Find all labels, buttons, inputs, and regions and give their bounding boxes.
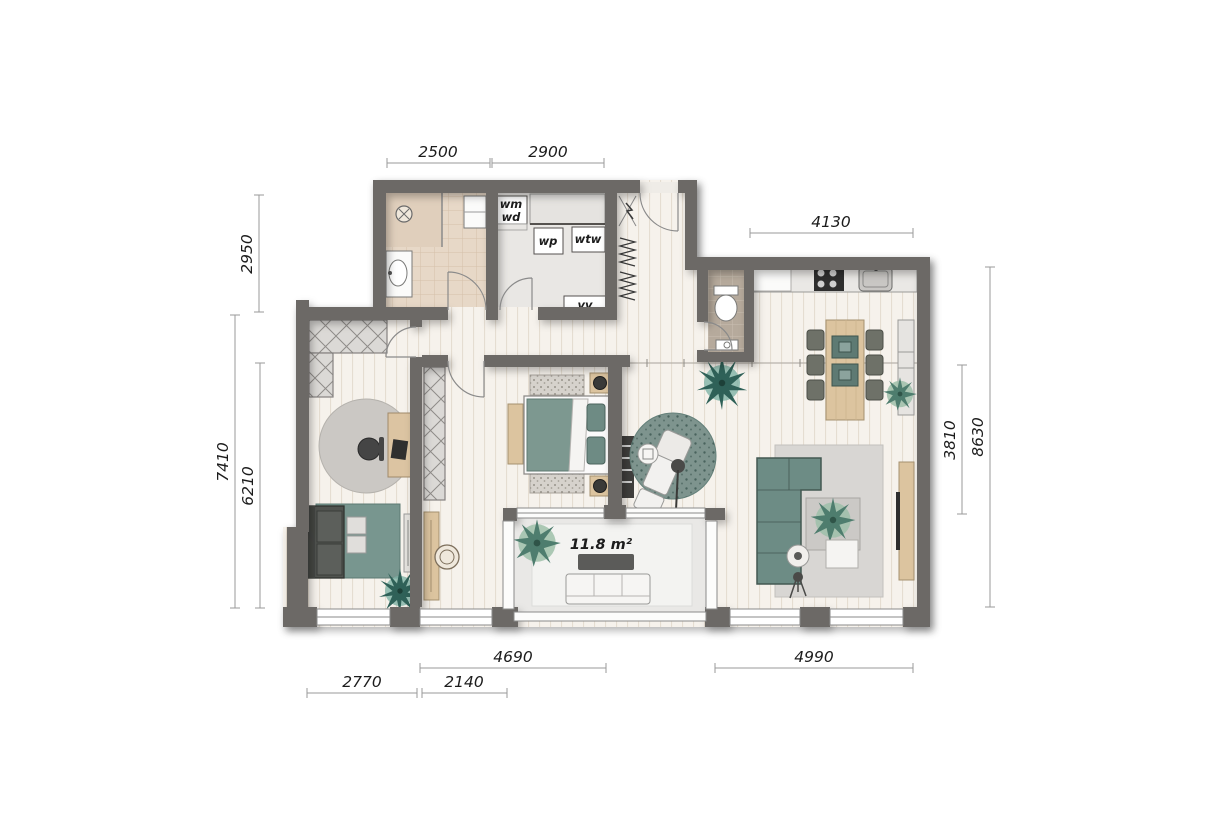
balcony-rail-bottom	[514, 612, 706, 621]
wall	[410, 357, 422, 607]
wall	[283, 607, 317, 627]
dim-label: 2140	[444, 673, 484, 691]
wall	[486, 307, 498, 320]
office-chair	[358, 438, 380, 460]
speaker-icon	[594, 377, 607, 390]
dimension-7410: 7410	[214, 315, 240, 608]
dim-label: 4990	[794, 648, 834, 666]
balcony-rail-left	[503, 521, 514, 609]
dim-label: 7410	[214, 442, 232, 482]
coffee-table-white	[826, 540, 858, 568]
lounge-side-table	[638, 444, 658, 464]
label-wm: wm	[500, 197, 523, 211]
tv-screen	[896, 492, 900, 550]
dimension-3810: 3810	[941, 365, 967, 514]
wall	[486, 193, 498, 307]
placemat-inner	[839, 342, 851, 352]
pouf	[347, 536, 366, 553]
chair	[807, 380, 824, 400]
utility-counter	[530, 194, 605, 224]
dim-label: 4130	[811, 213, 851, 231]
chair	[807, 330, 824, 350]
dim-label: 2770	[342, 673, 382, 691]
bed-rug-dots	[530, 375, 584, 395]
bed-pillow	[587, 437, 605, 464]
wall	[484, 355, 630, 367]
entry-threshold	[640, 182, 678, 193]
side-table-center	[794, 552, 802, 560]
wall	[744, 270, 754, 362]
dim-label: 8630	[969, 417, 987, 457]
laptop	[391, 439, 408, 460]
bath-faucet	[388, 271, 392, 275]
washer-dryer-front	[496, 224, 527, 230]
chair	[807, 355, 824, 375]
wall	[373, 193, 386, 307]
chair	[866, 330, 883, 350]
wall	[685, 257, 697, 270]
bed-duvet	[527, 399, 573, 471]
label-wp: wp	[539, 234, 558, 248]
wall	[296, 307, 448, 320]
wall	[705, 508, 725, 520]
dimension-4990: 4990	[715, 648, 913, 673]
wall	[903, 607, 930, 627]
speaker-icon	[594, 480, 607, 493]
rattan-stool	[435, 545, 459, 569]
toilet-bowl	[715, 295, 737, 321]
lamp-head	[793, 572, 803, 582]
wall	[604, 505, 626, 519]
office-chair-back	[379, 437, 384, 461]
dimension-2140: 2140	[422, 673, 507, 698]
wall	[697, 270, 708, 322]
wardrobe	[424, 367, 445, 500]
dim-label: 6210	[239, 466, 257, 506]
bed-pillow	[587, 404, 605, 431]
study-closet-top	[309, 320, 387, 353]
wall	[685, 193, 697, 257]
wall	[800, 607, 830, 627]
chair	[866, 380, 883, 400]
wall	[917, 270, 930, 627]
study-closet-left	[309, 353, 333, 397]
dim-label: 2900	[528, 143, 568, 161]
label-wtw: wtw	[575, 232, 602, 246]
shower	[386, 193, 442, 247]
dim-label: 4690	[493, 648, 533, 666]
bed-rug-dots	[530, 473, 584, 493]
wall	[390, 607, 420, 627]
label-wd: wd	[502, 210, 522, 224]
placemat-inner	[839, 370, 851, 380]
dimension-4130: 4130	[750, 213, 913, 238]
dimension-2900: 2900	[492, 143, 604, 168]
burner	[818, 281, 825, 288]
wall	[605, 193, 617, 307]
wall	[503, 508, 517, 521]
study-sofa-cushion	[317, 544, 342, 575]
wall	[697, 257, 930, 270]
floor-plan-drawing: wm wd wp wtw vv	[0, 0, 1220, 813]
burner	[830, 270, 837, 277]
dimension-2500: 2500	[387, 143, 490, 168]
dim-label: 3810	[941, 420, 959, 460]
wall	[538, 307, 617, 320]
study-sofa-cushion	[317, 511, 342, 542]
wall	[422, 355, 448, 367]
dimension-2770: 2770	[307, 673, 417, 698]
chair	[866, 355, 883, 375]
balcony-table	[578, 554, 634, 570]
wall	[697, 352, 754, 362]
dimension-2950: 2950	[238, 195, 264, 312]
burner	[818, 270, 825, 277]
bed-bench	[508, 404, 523, 464]
wall	[373, 180, 640, 193]
tv-cabinet	[899, 462, 914, 580]
dim-label: 2950	[238, 234, 256, 274]
floor-plan-canvas: wm wd wp wtw vv	[0, 0, 1220, 813]
wall	[678, 180, 697, 193]
dimension-4690: 4690	[420, 648, 606, 673]
pouf	[347, 517, 366, 534]
wall	[410, 320, 422, 327]
burner	[830, 281, 837, 288]
balcony-area-label: 11.8 m²	[570, 537, 633, 553]
toilet-tank	[714, 286, 738, 295]
dimension-6210: 6210	[239, 363, 265, 608]
dimension-8630: 8630	[969, 267, 995, 607]
wall	[608, 367, 622, 513]
balcony-sofa	[566, 574, 650, 604]
wall	[705, 607, 730, 627]
balcony-rail-right	[706, 521, 717, 609]
dim-label: 2500	[418, 143, 458, 161]
wall	[296, 300, 309, 532]
